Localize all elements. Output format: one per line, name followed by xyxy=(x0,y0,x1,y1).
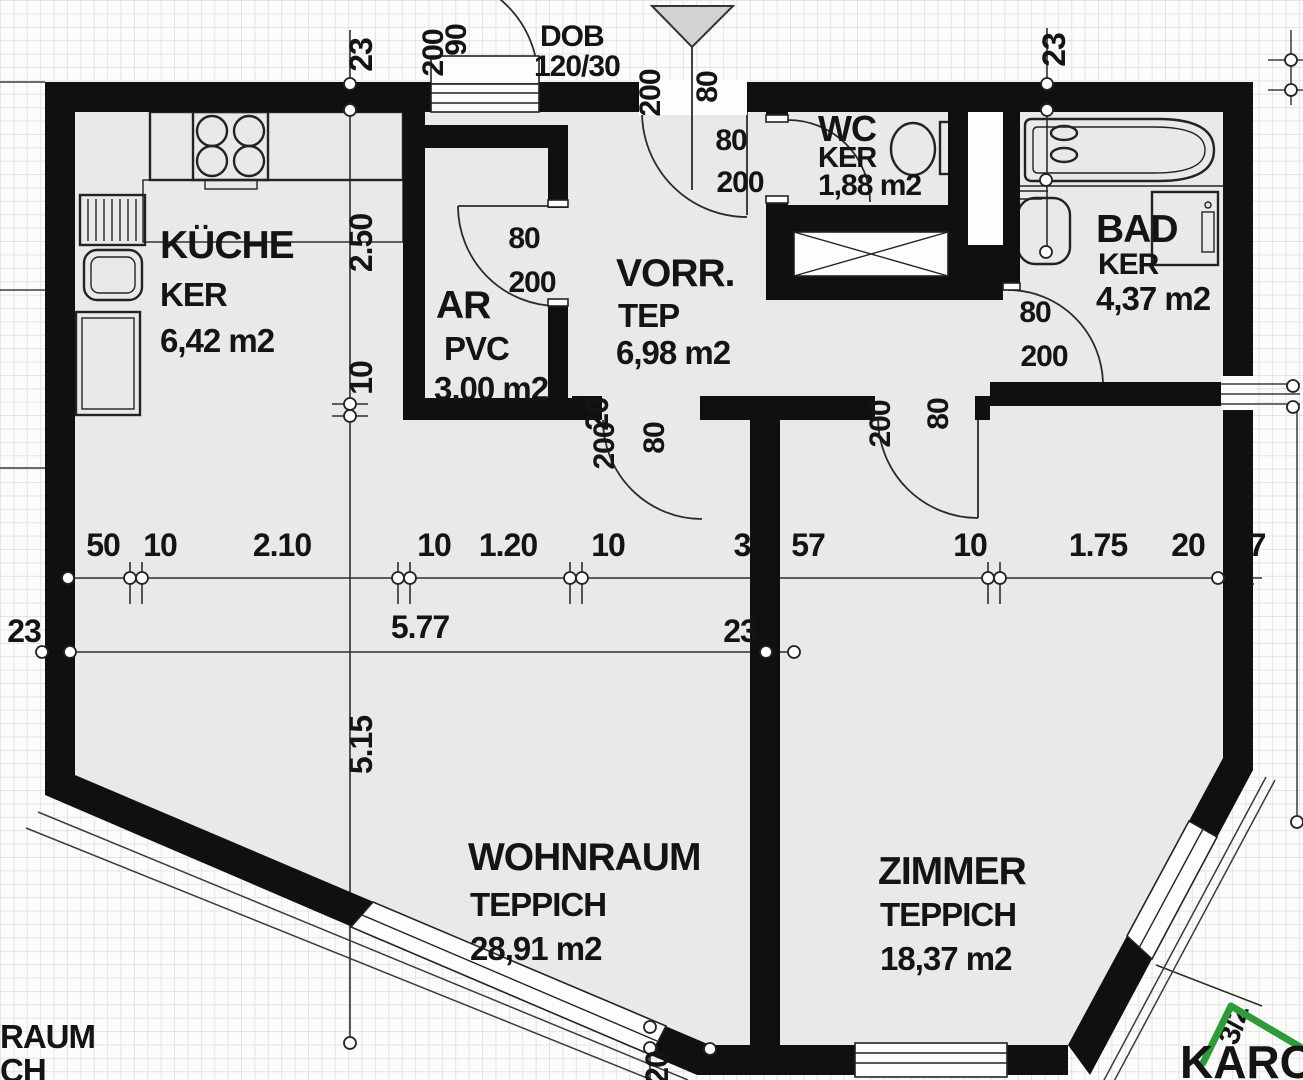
wohnraum-door-height-label: 200 xyxy=(588,422,621,469)
zimmer-door-height-label: 200 xyxy=(864,400,897,447)
room-kueche-name: KÜCHE xyxy=(160,224,294,267)
bad-door-height-label: 200 xyxy=(1020,340,1067,373)
room-kueche-area: 6,42 m2 xyxy=(160,322,275,359)
dim-10-vert: 10 xyxy=(343,361,379,395)
room-kueche-floor: KER xyxy=(160,276,228,313)
dim-23-left: 23 xyxy=(7,613,41,649)
dim-10a: 10 xyxy=(143,527,177,563)
dim-50: 50 xyxy=(86,527,120,563)
dim-210: 2.10 xyxy=(253,527,311,563)
dim-23-topleft: 23 xyxy=(343,38,379,72)
dob-note-line1: DOB xyxy=(540,20,604,53)
zimmer-door-width-label: 80 xyxy=(922,398,955,430)
dim-577: 5.77 xyxy=(391,609,449,645)
room-zimmer-floor: TEPPICH xyxy=(880,896,1016,933)
neighbor-floor-label: CH xyxy=(0,1052,46,1080)
room-wc-area: 1,88 m2 xyxy=(818,169,921,202)
room-vorraum-area: 6,98 m2 xyxy=(616,334,731,371)
room-vorraum-floor: TEP xyxy=(618,297,679,334)
wohnraum-door-width-label: 80 xyxy=(638,422,671,454)
dob-note-line2: 120/30 xyxy=(534,50,620,83)
floorplan-drawing: KÜCHE KER 6,42 m2 AR PVC 3,00 m2 VORR. T… xyxy=(0,0,1303,1080)
dim-20: 20 xyxy=(1171,527,1205,563)
room-zimmer-area: 18,37 m2 xyxy=(880,940,1012,977)
room-bad-name: BAD xyxy=(1096,208,1178,251)
room-wohnraum-area: 28,91 m2 xyxy=(470,930,602,967)
shaft-niche xyxy=(968,112,1003,245)
dim-23-topright: 23 xyxy=(1036,33,1072,67)
dim-515: 5.15 xyxy=(343,716,379,774)
ar-door-height-label: 200 xyxy=(508,266,555,299)
wc-door-width-label: 80 xyxy=(715,124,747,157)
dim-10d: 10 xyxy=(953,527,987,563)
dim-357a: 3 xyxy=(734,527,751,563)
room-wohnraum-floor: TEPPICH xyxy=(470,886,606,923)
entrance-height-label: 200 xyxy=(634,69,667,116)
dim-23-right: 23 xyxy=(723,613,757,649)
entrance-width-label: 80 xyxy=(691,71,724,103)
wc-door-height-label: 200 xyxy=(716,166,763,199)
dim-250: 2.50 xyxy=(343,214,379,272)
dim-7: 7 xyxy=(1249,527,1266,563)
room-zimmer-name: ZIMMER xyxy=(878,850,1027,893)
neighbor-room-label: RAUM xyxy=(0,1018,95,1055)
bad-door-width-label: 80 xyxy=(1019,296,1051,329)
room-ar-name: AR xyxy=(436,284,491,327)
dim-175: 1.75 xyxy=(1069,527,1127,563)
vent-shaft xyxy=(794,232,948,276)
floorplan-scan: KÜCHE KER 6,42 m2 AR PVC 3,00 m2 VORR. T… xyxy=(0,0,1303,1080)
room-ar-area: 3,00 m2 xyxy=(434,370,549,407)
zimmer-window xyxy=(855,1043,1007,1077)
dim-120: 1.20 xyxy=(479,527,537,563)
room-bad-floor: KER xyxy=(1098,248,1160,281)
balcony-door-width-label: 90 xyxy=(440,24,473,56)
ar-door-width-label: 80 xyxy=(508,222,540,255)
dim-357b: 57 xyxy=(791,527,825,563)
room-wohnraum-name: WOHNRAUM xyxy=(468,836,700,879)
room-vorraum-name: VORR. xyxy=(616,252,735,295)
dim-20-bottom: 20 xyxy=(639,1051,675,1080)
room-bad-area: 4,37 m2 xyxy=(1096,280,1211,317)
dim-10c: 10 xyxy=(591,527,625,563)
room-ar-floor: PVC xyxy=(444,330,509,367)
dim-10b: 10 xyxy=(417,527,451,563)
karos-logo-text: KAROS xyxy=(1180,1036,1303,1080)
